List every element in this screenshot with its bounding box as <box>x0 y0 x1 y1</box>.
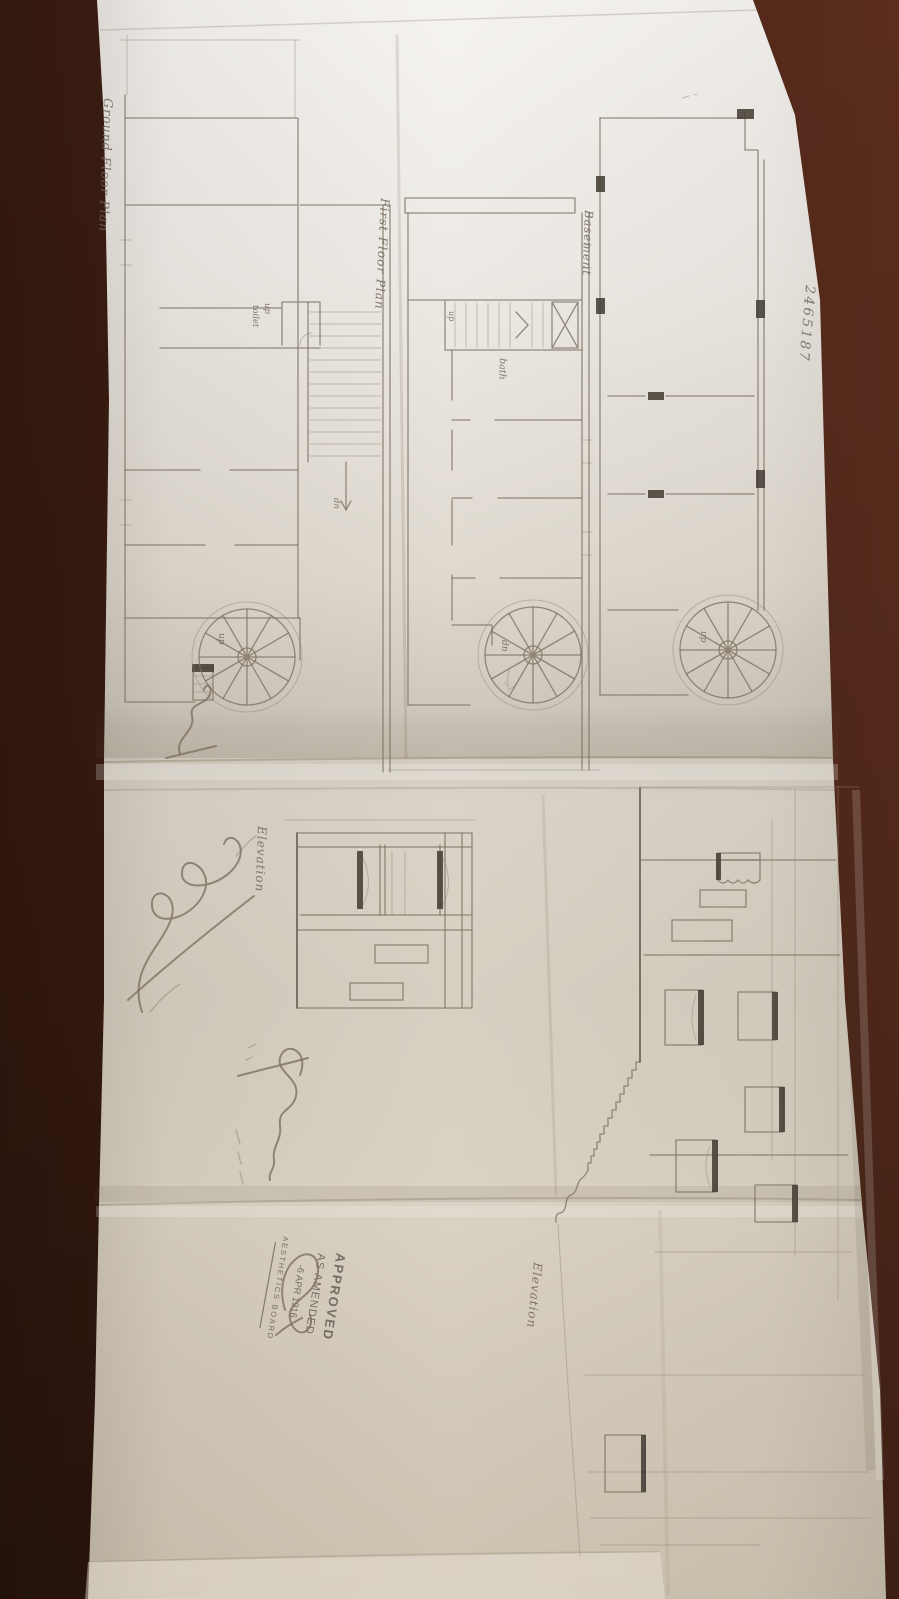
photo-of-architectural-drawing: Ground Floor Plan up toilet dn up First … <box>0 0 899 1599</box>
basement-plan-label: Basement <box>580 209 596 276</box>
bath-label: bath <box>496 358 508 380</box>
first-stair-up-label: up <box>447 311 456 321</box>
toilet-up-label: up <box>262 303 272 314</box>
basement-spiral-up-label: up <box>698 631 708 643</box>
ground-spiral-up-label: up <box>216 633 226 645</box>
front-elevation-label: Elevation <box>253 825 269 893</box>
toilet-label: toilet <box>250 305 260 328</box>
first-spiral-dn-label: dn <box>499 640 509 652</box>
paper-sheet <box>88 0 886 1599</box>
ground-stair-dn-label: dn <box>331 498 341 509</box>
drawing-scene: Ground Floor Plan up toilet dn up First … <box>0 0 899 1599</box>
